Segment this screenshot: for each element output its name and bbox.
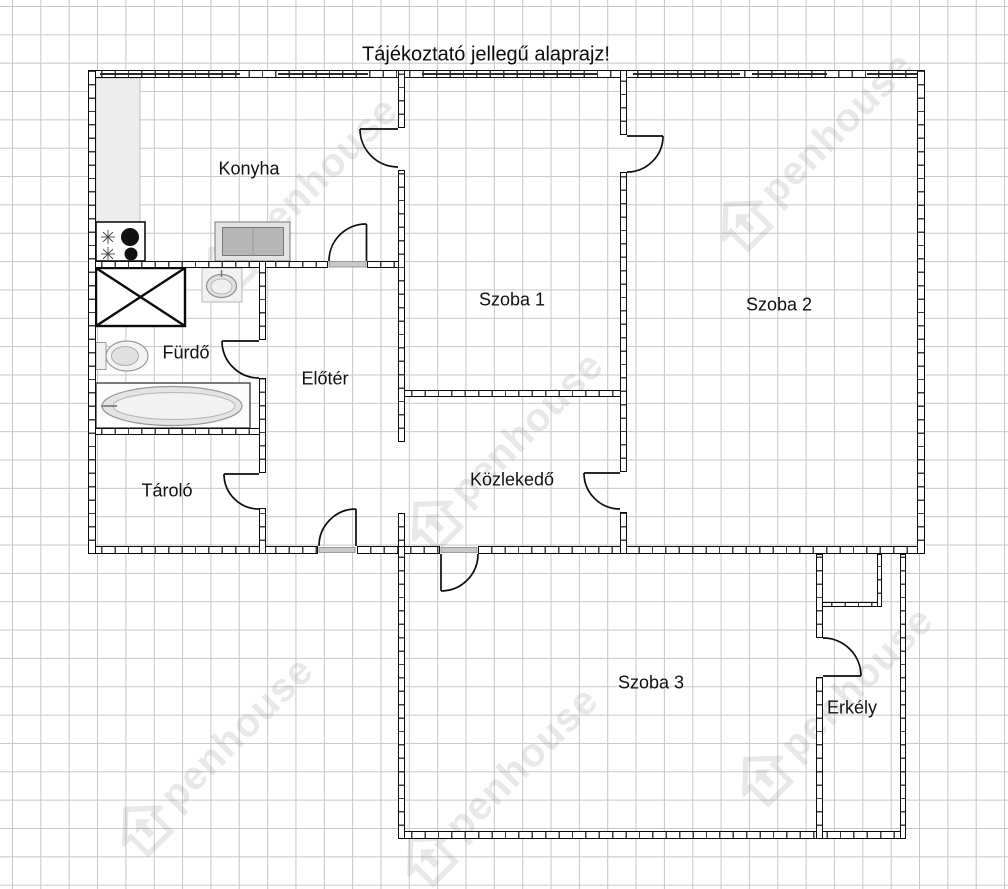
room-label-tarolo: Tároló — [141, 481, 192, 502]
room-label-furdo: Fürdő — [162, 343, 209, 364]
threshold-entrance-door — [319, 548, 355, 553]
door-konyha-szoba1 — [360, 129, 398, 167]
door-szoba3 — [441, 554, 478, 591]
floor-plan: penhouse penhouse penhouse penhouse penh… — [0, 0, 1008, 889]
room-label-eloter: Előtér — [301, 369, 348, 390]
threshold-szoba3-door — [441, 548, 477, 553]
threshold-konyha-door — [329, 262, 366, 268]
room-label-szoba-2: Szoba 2 — [746, 295, 812, 316]
plan-title: Tájékoztató jellegű alaprajz! — [362, 44, 610, 67]
doors-layer — [0, 0, 1008, 889]
room-label-szoba-3: Szoba 3 — [618, 673, 684, 694]
door-furdo — [222, 341, 259, 378]
room-label-konyha: Konyha — [218, 159, 279, 180]
door-kozlekedo-szoba2 — [584, 473, 620, 509]
door-eloter-konyha — [329, 224, 367, 261]
room-label-erkely: Erkély — [827, 698, 877, 719]
door-erkely — [823, 638, 861, 676]
room-label-szoba-1: Szoba 1 — [479, 290, 545, 311]
room-label-kozlekedo: Közlekedő — [470, 470, 554, 491]
door-entrance — [319, 509, 356, 546]
door-szoba1-szoba2 — [627, 136, 663, 172]
door-tarolo — [224, 474, 259, 509]
